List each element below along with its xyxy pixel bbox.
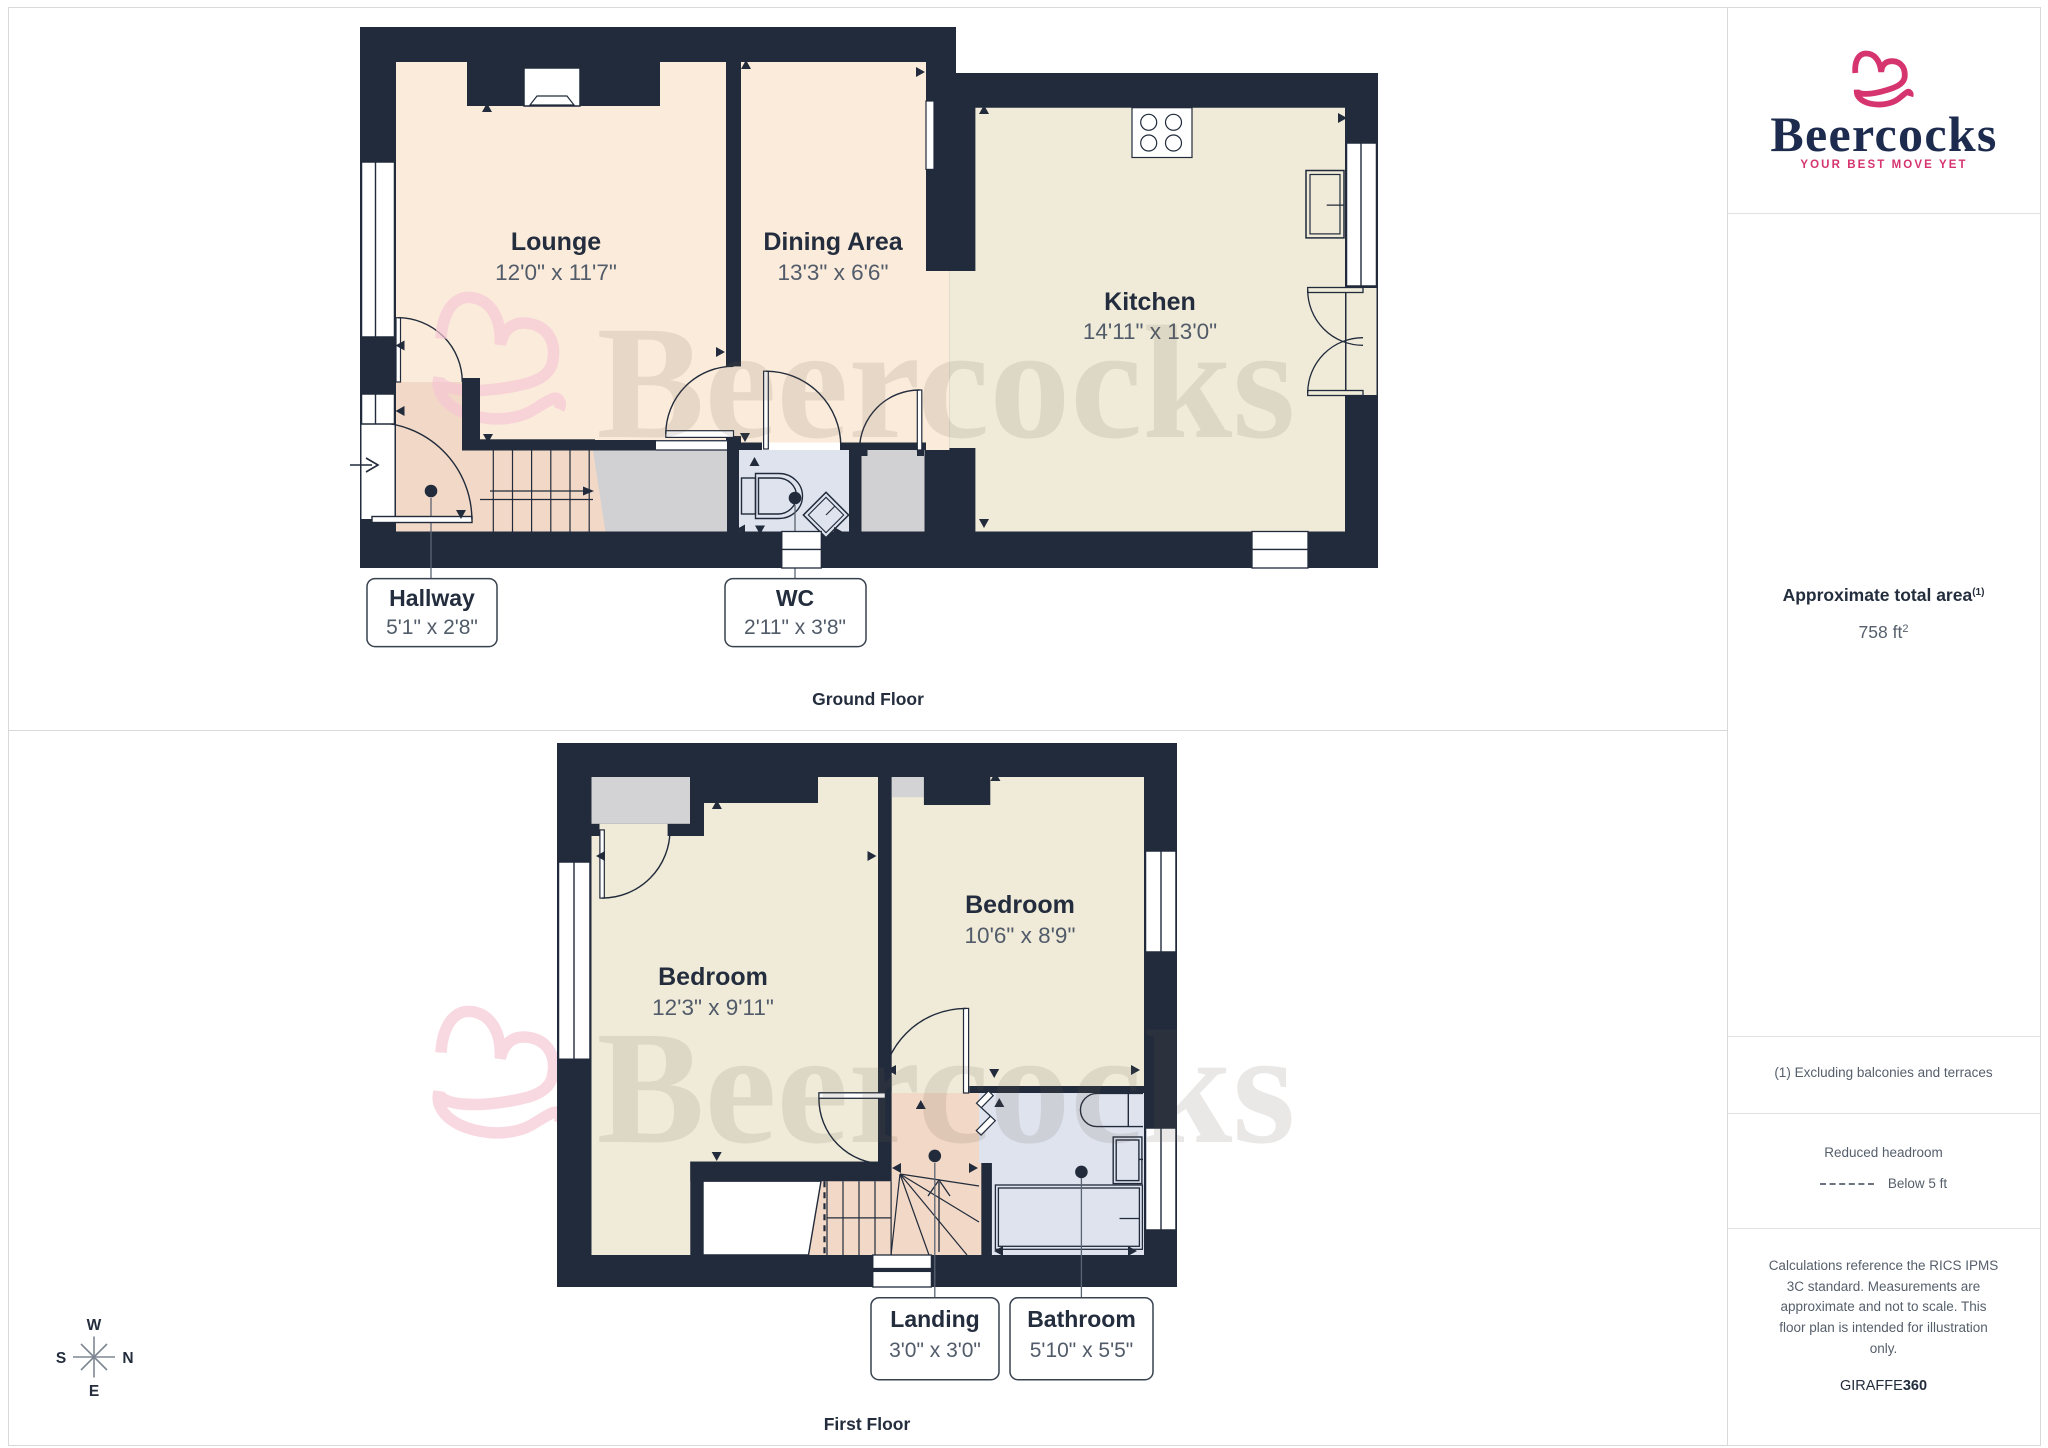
svg-text:Beercocks: Beercocks: [1770, 106, 1997, 162]
svg-text:YOUR BEST MOVE YET: YOUR BEST MOVE YET: [1800, 159, 1967, 171]
